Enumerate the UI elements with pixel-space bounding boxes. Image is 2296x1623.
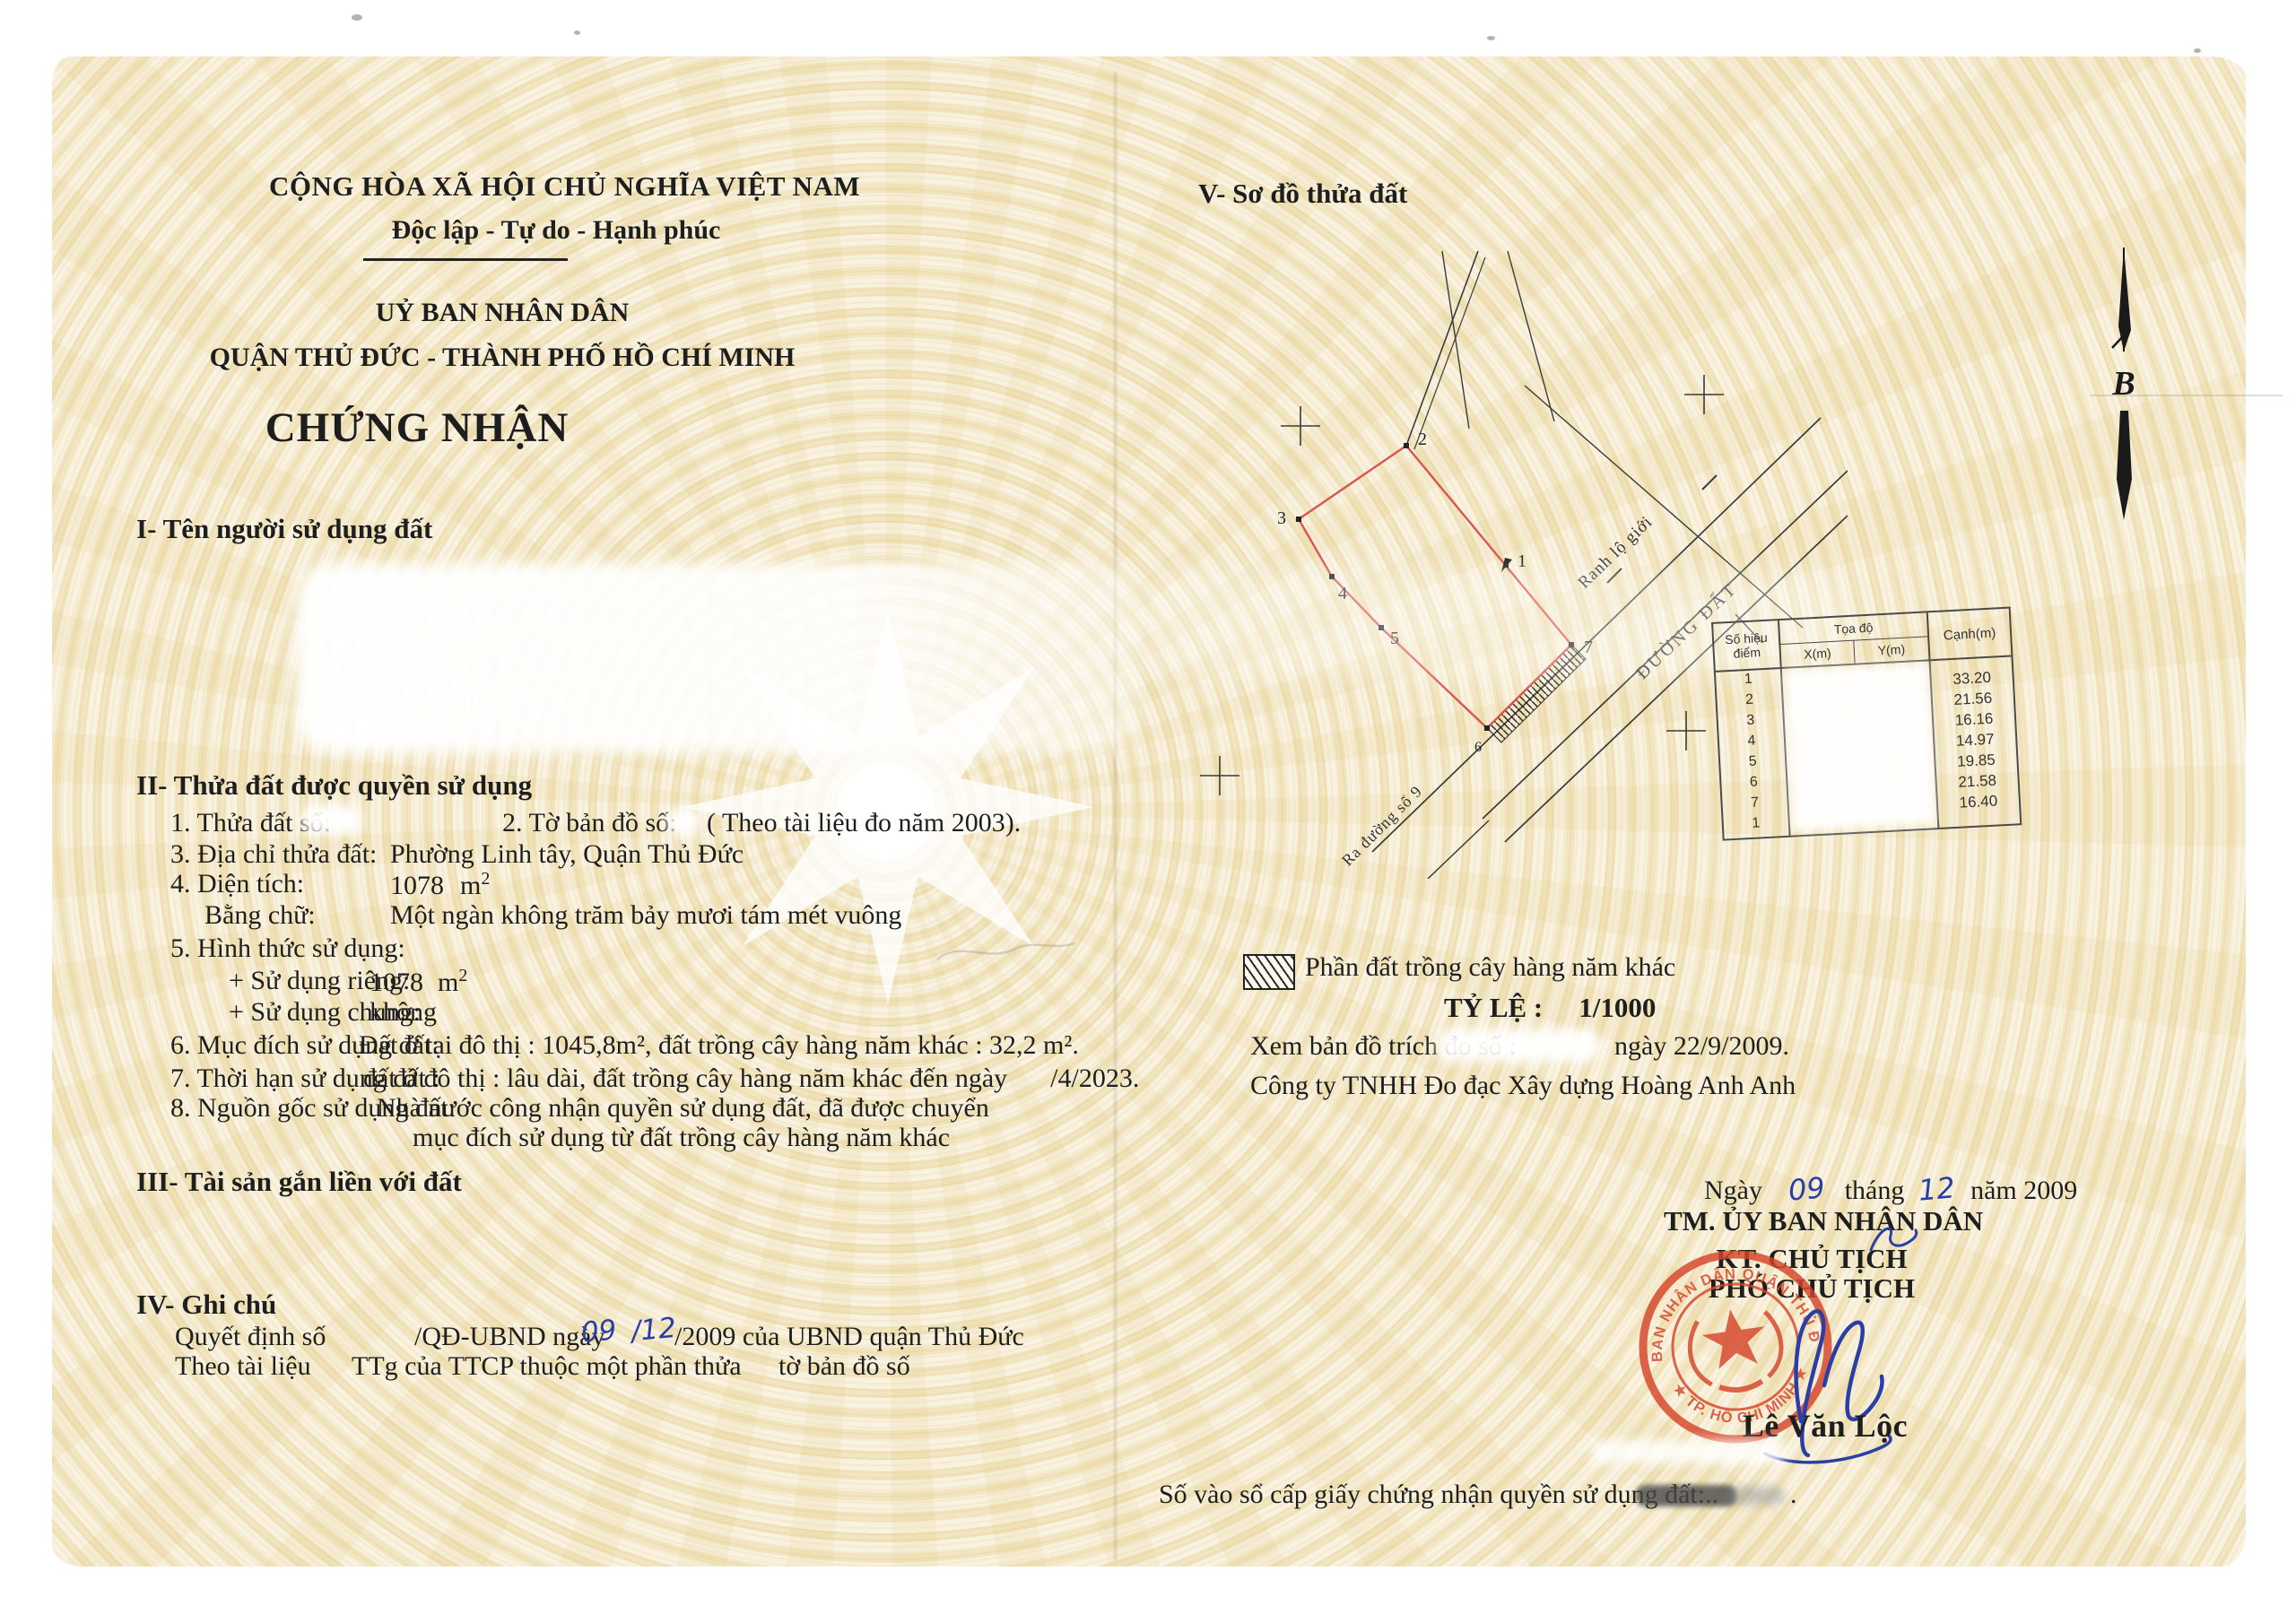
address-label: 3. Địa chỉ thửa đất:: [170, 839, 377, 871]
north-arrow-icon: B: [2090, 244, 2161, 531]
lane-edge: [1428, 820, 1489, 879]
scale-value: 1/1000: [1578, 992, 1656, 1023]
scan-speck: [2194, 48, 2201, 53]
date-day-handwritten: 09: [1787, 1171, 1827, 1207]
issuer-name: UỶ BAN NHÂN DÂN: [269, 298, 735, 329]
survey-company: Công ty TNHH Đo đạc Xây dựng Hoàng Anh A…: [1250, 1071, 1796, 1102]
redaction-registry-number: [1636, 1485, 1736, 1506]
shared-use-value: không: [370, 997, 437, 1028]
point-row: 1: [1723, 811, 1788, 836]
decision-day-handwritten: 09: [580, 1315, 618, 1350]
redaction-registry-tail: [1729, 1487, 1785, 1505]
edge-length: 16.40: [1937, 789, 2019, 814]
registry-label: Số vào sổ cấp giấy chứng nhận quyền sử d…: [1159, 1480, 1718, 1511]
section5-heading: V- Sơ đồ thửa đất: [1198, 178, 1407, 210]
area-label: 4. Diện tích:: [170, 869, 304, 900]
private-use-unit: m: [438, 968, 458, 997]
redaction-map-sheet: [665, 809, 701, 836]
scan-speck: [352, 14, 362, 21]
survey-cross: [1281, 406, 1320, 446]
redaction-seal-band: [1592, 1440, 1785, 1463]
redaction-coordinates: [1784, 663, 1935, 831]
document-title: CHỨNG NHẬN: [242, 404, 592, 452]
date-month-handwritten: 12: [1917, 1171, 1956, 1207]
exit-road-label: Ra đường số 9: [1338, 782, 1425, 869]
map-ref-date: ngày 22/9/2009.: [1614, 1031, 1789, 1063]
redaction-plot-number: [300, 805, 361, 834]
private-use-value: 1078m2: [370, 966, 467, 999]
private-use-number: 1078: [370, 968, 423, 997]
scanned-certificate-page: { "header": { "national_title": "CỘNG HÒ…: [0, 0, 2296, 1623]
term-value: đất ở đô thị : lâu dài, đất trồng cây hà…: [363, 1063, 1139, 1095]
date-year: năm 2009: [1970, 1176, 2077, 1205]
doc-ref-mid: TTg của TTCP thuộc một phần thửa: [352, 1351, 742, 1383]
area-value: 1078m2: [390, 869, 490, 902]
survey-cross: [1200, 756, 1239, 795]
map-sheet-label: 2. Tờ bản đồ số:: [502, 808, 676, 839]
col-header-edge: Cạnh(m): [1928, 609, 2012, 660]
survey-cross: [1666, 711, 1706, 751]
point-label-1: 1: [1518, 551, 1526, 571]
scale-label: TỶ LỆ :: [1444, 992, 1543, 1023]
section2-heading: II- Thửa đất được quyền sử dụng: [136, 769, 532, 802]
vertex-label-3: 3: [1277, 508, 1286, 528]
section3-heading: III- Tài sản gắn liền với đất: [136, 1166, 462, 1198]
redaction-map-ref: [1435, 1029, 1601, 1062]
north-letter: B: [2111, 365, 2135, 403]
coordinate-table: Số hiệu điểm Tọa độ X(m) Y(m) Cạnh(m) 1 …: [1711, 607, 2022, 841]
issuer-locality: QUẬN THỦ ĐỨC - THÀNH PHỐ HỒ CHÍ MINH: [206, 343, 798, 374]
date-word-month: tháng: [1845, 1176, 1905, 1205]
pencil-scribble: [933, 922, 1085, 976]
vertex-dot-2: [1404, 443, 1409, 448]
neighbor-line-2: [1508, 251, 1554, 421]
private-use-sup: 2: [458, 966, 467, 985]
redaction-owner-name: [296, 563, 1139, 753]
col-header-y: Y(m): [1854, 636, 1928, 663]
vertex-label-6: 6: [1474, 740, 1482, 755]
legend-label: Phần đất trồng cây hàng năm khác: [1305, 952, 1675, 984]
area-unit: m: [460, 871, 481, 900]
origin-value-cont: mục đích sử dụng từ đất trồng cây hàng n…: [413, 1123, 950, 1154]
col-header-point-l2: điểm: [1733, 645, 1761, 661]
vertex-dot-3: [1296, 516, 1301, 522]
scale-line: TỶ LỆ :1/1000: [1444, 992, 1656, 1024]
section4-heading: IV- Ghi chú: [136, 1289, 276, 1321]
section1-heading: I- Tên người sử dụng đất: [136, 513, 432, 545]
decision-label: Quyết định số: [175, 1322, 326, 1353]
origin-value: Nhà nước công nhận quyền sử dụng đất, đã…: [377, 1093, 989, 1124]
area-unit-sup: 2: [481, 869, 490, 889]
use-form-label: 5. Hình thức sử dụng:: [170, 933, 405, 965]
doc-ref-label: Theo tài liệu: [175, 1351, 311, 1383]
scan-speck: [574, 30, 580, 35]
page-fold-line: [1114, 72, 1117, 1560]
registry-suffix: .: [1790, 1480, 1797, 1511]
decision-month-handwritten: /12: [631, 1313, 678, 1349]
address-value: Phường Linh tây, Quận Thủ Đức: [390, 839, 744, 871]
area-number: 1078: [390, 871, 444, 900]
doc-ref-post: tờ bản đồ số: [778, 1351, 910, 1383]
vertex-dot-6: [1484, 725, 1490, 731]
area-words-label: Bằng chữ:: [204, 900, 316, 932]
boundary-dash: [1702, 475, 1717, 490]
term-text: đất ở đô thị : lâu dài, đất trồng cây hà…: [363, 1063, 1007, 1093]
map-sheet-note: ( Theo tài liệu đo năm 2003).: [707, 808, 1021, 839]
col-header-x: X(m): [1780, 640, 1854, 667]
initial-scribble: [1864, 1219, 1926, 1260]
national-motto: Độc lập - Tự do - Hạnh phúc: [269, 215, 843, 247]
legend-hatch-swatch: [1243, 954, 1295, 990]
col-header-point: Số hiệu điểm: [1713, 621, 1780, 671]
scan-speck: [1487, 36, 1495, 40]
decision-post: /2009 của UBND quận Thủ Đức: [674, 1322, 1024, 1353]
survey-cross: [1684, 375, 1724, 414]
motto-rule: [363, 258, 568, 261]
boundary-ext-line2: [1414, 257, 1485, 449]
national-title: CỘNG HÒA XÃ HỘI CHỦ NGHĨA VIỆT NAM: [269, 170, 843, 203]
purpose-value: Đất ở tại đô thị : 1045,8m², đất trồng c…: [359, 1030, 1079, 1062]
signing-date-line: Ngày 09 tháng 12 năm 2009: [1704, 1173, 2077, 1207]
col-header-point-l1: Số hiệu: [1725, 630, 1768, 647]
decision-mid: /QĐ-UBND ngày: [414, 1322, 604, 1353]
area-words-value: Một ngàn không trăm bảy mươi tám mét vuô…: [390, 900, 901, 932]
date-word-day: Ngày: [1704, 1176, 1762, 1205]
term-date: /4/2023.: [1050, 1063, 1139, 1093]
vertex-label-2: 2: [1418, 430, 1427, 449]
neighbor-line-1: [1442, 251, 1469, 429]
